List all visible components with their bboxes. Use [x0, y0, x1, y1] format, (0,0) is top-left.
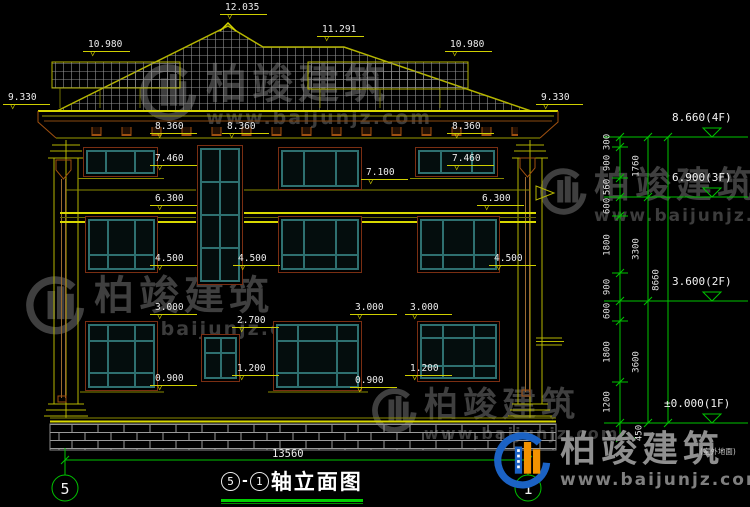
elevation-marker-7.460: 7.460▽ [452, 154, 481, 164]
chain-dimension-3600: 3600 [633, 351, 642, 373]
elevation-marker-4.500: 4.500▽ [155, 254, 184, 264]
level-triangle-icon: ▽ [157, 313, 162, 322]
title-axis-end: 1 [250, 472, 269, 491]
window-pane [90, 221, 107, 254]
elevation-marker-9.330: 9.330▽ [541, 93, 570, 103]
level-triangle-icon: ▽ [157, 132, 162, 141]
watermark-brand: 柏竣建筑 [424, 385, 580, 425]
level-triangle-icon: ▽ [240, 264, 245, 273]
level-triangle-icon: ▽ [496, 264, 501, 273]
level-triangle-icon: ▽ [368, 178, 373, 187]
window-pane [444, 326, 474, 337]
title-text: 轴立面图 [271, 466, 363, 496]
window-pane [109, 326, 134, 340]
floor-level-±0.000(1F): ±0.000(1F) [664, 398, 730, 409]
window-pane [299, 342, 336, 372]
level-triangle-icon: ▽ [10, 103, 15, 112]
window-pane [444, 339, 474, 364]
drawing-title: 5 - 1 轴立面图 [221, 466, 363, 504]
elevation-marker-7.460: 7.460▽ [155, 154, 184, 164]
level-triangle-icon: ▽ [357, 313, 362, 322]
watermark-logo-color: 柏竣建筑 www.baijunjz.com [494, 432, 750, 490]
elevation-marker-8.360: 8.360▽ [155, 122, 184, 132]
chain-dimension-300: 300 [604, 134, 613, 150]
window-pane [475, 326, 495, 337]
floor-level-6.900(3F): 6.900(3F) [672, 172, 732, 183]
window-pane [475, 221, 495, 254]
window-pane [88, 152, 105, 172]
level-triangle-icon: ▽ [90, 50, 95, 59]
level-triangle-icon: ▽ [454, 164, 459, 173]
window-pane [136, 326, 153, 340]
elevation-marker-6.300: 6.300▽ [155, 194, 184, 204]
window-pane [278, 326, 297, 340]
elevation-marker-0.900: 0.900▽ [155, 374, 184, 384]
window-pane [278, 342, 297, 372]
watermark-brand: 柏竣建筑 [206, 60, 390, 108]
window-pane [136, 256, 153, 269]
elevation-marker-1.200: 1.200▽ [237, 364, 266, 374]
watermark-brand: 柏竣建筑 [94, 273, 274, 319]
window-pane [337, 221, 357, 254]
window-pane [90, 256, 107, 269]
brand-logo-icon [372, 388, 418, 434]
window-pane [206, 339, 220, 352]
level-triangle-icon: ▽ [239, 374, 244, 383]
window-staircase [197, 145, 243, 285]
title-axis-start: 5 [221, 472, 240, 491]
watermark-url: www.baijunjz.com [560, 472, 750, 489]
level-triangle-icon: ▽ [324, 35, 329, 44]
level-triangle-icon: ▽ [543, 103, 548, 112]
window-pane [90, 326, 107, 340]
watermark-top-center: 柏竣建筑 www.baijunjz.com [140, 64, 432, 128]
elevation-marker-3.000: 3.000▽ [410, 303, 439, 313]
chain-dimension-560: 560 [604, 179, 613, 195]
elevation-marker-10.980: 10.980▽ [450, 40, 484, 50]
cad-canvas: 柏竣建筑 www.baijunjz.com 柏竣建筑 www.baijunjz.… [0, 0, 750, 507]
level-triangle-icon: ▽ [239, 326, 244, 335]
window-pane [202, 150, 219, 181]
outdoor-ground-note: (室外地面) [700, 446, 736, 457]
window-pane [90, 342, 107, 372]
elevation-marker-3.000: 3.000▽ [155, 303, 184, 313]
floor-level-3.600(2F): 3.600(2F) [672, 276, 732, 287]
window-pane [283, 221, 303, 254]
window-pane [475, 256, 495, 269]
chain-dimension-1800: 1800 [604, 341, 613, 363]
elevation-marker-11.291: 11.291▽ [322, 25, 356, 35]
floor-level-8.660(4F): 8.660(4F) [672, 112, 732, 123]
level-triangle-icon: ▽ [357, 386, 362, 395]
window-2f-middle [278, 216, 362, 273]
elevation-marker-1.200: 1.200▽ [410, 364, 439, 374]
window-pane [422, 221, 442, 254]
level-triangle-icon: ▽ [412, 313, 417, 322]
elevation-marker-0.900: 0.900▽ [355, 376, 384, 386]
title-separator: - [242, 473, 248, 489]
window-pane [90, 374, 107, 386]
window-pane [109, 221, 134, 254]
window-pane [222, 354, 236, 377]
axis-bubble-5: 5 [60, 480, 69, 498]
window-pane [305, 221, 335, 254]
elevation-marker-6.300: 6.300▽ [482, 194, 511, 204]
elevation-marker-2.700: 2.700▽ [237, 316, 266, 326]
window-pane [422, 326, 442, 337]
chain-dimension-600: 600 [604, 198, 613, 214]
window-pane [338, 342, 357, 372]
window-pane [221, 150, 238, 181]
window-pane [299, 326, 336, 340]
window-2f-left [85, 216, 158, 273]
chain-dimension-3300: 3300 [633, 238, 642, 260]
overall-width-dimension: 13560 [272, 448, 304, 460]
chain-dimension-900: 900 [604, 155, 613, 171]
window-pane [222, 339, 236, 352]
chain-dimension-8660: 8660 [653, 269, 662, 291]
window-pane [136, 152, 153, 172]
level-triangle-icon: ▽ [412, 374, 417, 383]
level-triangle-icon: ▽ [452, 50, 457, 59]
window-pane [109, 374, 134, 386]
window-pane [475, 367, 495, 377]
window-pane [221, 216, 238, 247]
window-3f-middle [278, 147, 362, 190]
watermark-url: www.baijunjz.com [594, 208, 750, 225]
window-pane [305, 256, 335, 269]
window-pane [109, 342, 134, 372]
window-3f-left [83, 147, 158, 177]
elevation-marker-4.500: 4.500▽ [494, 254, 523, 264]
title-underline-thin [221, 503, 363, 504]
elevation-marker-10.980: 10.980▽ [88, 40, 122, 50]
window-pane [338, 326, 357, 340]
elevation-marker-8.360: 8.360▽ [452, 122, 481, 132]
level-triangle-icon: ▽ [484, 204, 489, 213]
chain-dimension-1760: 1760 [633, 155, 642, 177]
chain-dimension-900: 900 [604, 279, 613, 295]
elevation-marker-3.000: 3.000▽ [355, 303, 384, 313]
window-pane [202, 216, 219, 247]
window-pane [136, 221, 153, 254]
elevation-marker-12.035: 12.035▽ [225, 3, 259, 13]
window-pane [202, 249, 219, 280]
window-pane [109, 256, 134, 269]
brand-logo-icon [26, 276, 86, 336]
window-pane [420, 152, 440, 172]
chain-dimension-1800: 1800 [604, 234, 613, 256]
elevation-marker-9.330: 9.330▽ [8, 93, 37, 103]
level-triangle-icon: ▽ [157, 164, 162, 173]
elevation-marker-4.500: 4.500▽ [238, 254, 267, 264]
window-pane [305, 152, 335, 185]
level-triangle-icon: ▽ [157, 204, 162, 213]
window-2f-right [417, 216, 500, 273]
elevation-marker-7.100: 7.100▽ [366, 168, 395, 178]
window-pane [206, 354, 220, 377]
level-triangle-icon: ▽ [157, 384, 162, 393]
level-triangle-icon: ▽ [227, 13, 232, 22]
window-pane [475, 339, 495, 364]
window-pane [202, 183, 219, 214]
window-pane [444, 221, 474, 254]
brand-logo-icon [140, 64, 198, 122]
elevation-marker-8.360: 8.360▽ [227, 122, 256, 132]
window-pane [283, 152, 303, 185]
window-pane [444, 256, 474, 269]
level-triangle-icon: ▽ [454, 132, 459, 141]
window-1f-left [85, 321, 158, 391]
level-triangle-icon: ▽ [157, 264, 162, 273]
title-underline [221, 499, 363, 502]
window-pane [337, 152, 357, 185]
window-pane [422, 256, 442, 269]
window-pane [107, 152, 133, 172]
window-pane [221, 183, 238, 214]
window-pane [136, 342, 153, 372]
window-pane [283, 256, 303, 269]
window-pane [422, 339, 442, 364]
chain-dimension-600: 600 [604, 303, 613, 319]
chain-dimension-1200: 1200 [604, 391, 613, 413]
window-pane [278, 374, 297, 386]
window-1f-middle [273, 321, 362, 391]
brand-logo-icon [540, 168, 588, 216]
level-triangle-icon: ▽ [229, 132, 234, 141]
window-pane [299, 374, 336, 386]
window-pane [337, 256, 357, 269]
brand-logo-color-icon [494, 432, 552, 490]
